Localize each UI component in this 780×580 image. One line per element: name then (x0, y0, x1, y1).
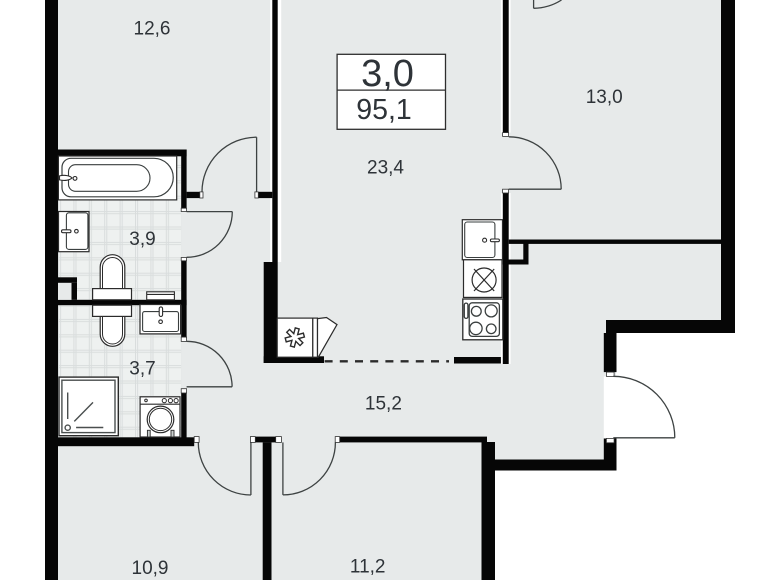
svg-text:3,9: 3,9 (129, 229, 155, 250)
svg-text:3,7: 3,7 (129, 358, 155, 379)
svg-text:10,9: 10,9 (132, 558, 169, 579)
svg-text:15,2: 15,2 (365, 393, 402, 414)
svg-text:23,4: 23,4 (367, 157, 404, 178)
svg-text:95,1: 95,1 (356, 94, 411, 126)
svg-text:3,0: 3,0 (361, 53, 414, 95)
svg-text:11,2: 11,2 (350, 557, 386, 578)
svg-text:13,0: 13,0 (586, 87, 623, 108)
svg-text:12,6: 12,6 (134, 18, 171, 39)
